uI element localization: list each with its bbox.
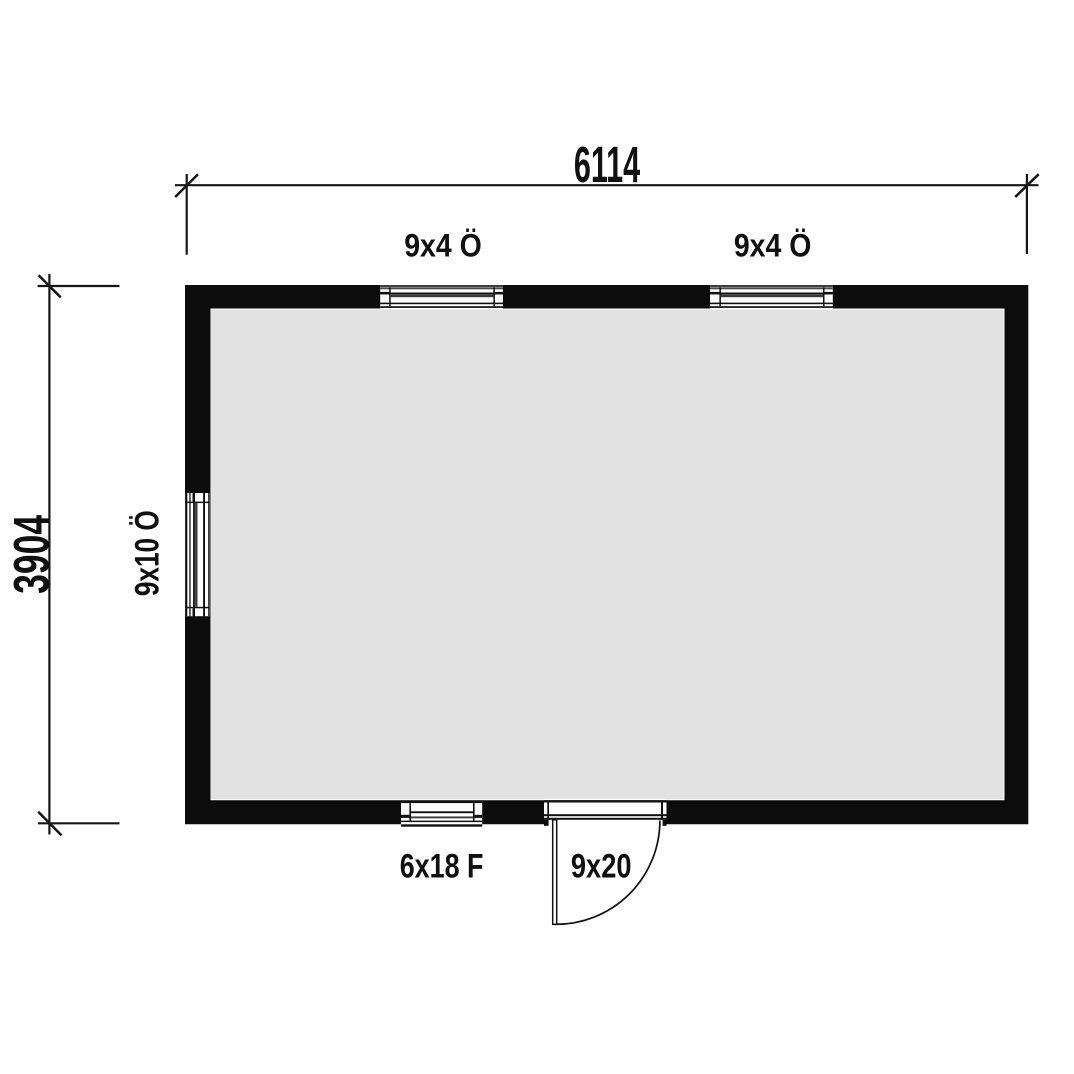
svg-text:9x4 Ö: 9x4 Ö bbox=[404, 229, 482, 264]
svg-text:9x10 Ö: 9x10 Ö bbox=[127, 510, 166, 596]
svg-text:6x18 F: 6x18 F bbox=[400, 846, 484, 885]
svg-text:3904: 3904 bbox=[5, 515, 60, 594]
svg-text:9x20: 9x20 bbox=[571, 846, 632, 885]
svg-text:9x4 Ö: 9x4 Ö bbox=[734, 229, 812, 264]
svg-text:6114: 6114 bbox=[574, 136, 641, 193]
